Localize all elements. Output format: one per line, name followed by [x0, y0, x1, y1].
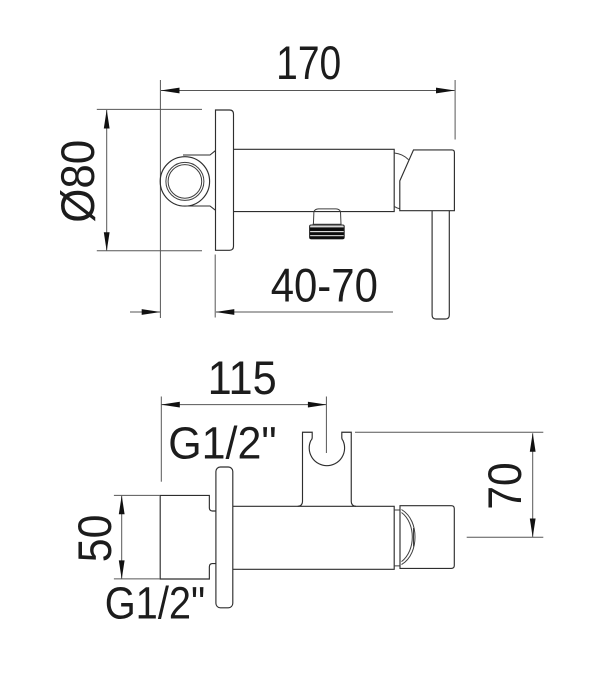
- svg-text:170: 170: [276, 36, 341, 89]
- svg-text:Ø80: Ø80: [51, 140, 104, 223]
- svg-text:115: 115: [208, 351, 277, 404]
- svg-text:50: 50: [68, 515, 121, 563]
- svg-text:40-70: 40-70: [271, 259, 378, 312]
- svg-text:G1/2": G1/2": [168, 418, 276, 469]
- svg-text:G1/2": G1/2": [105, 578, 206, 629]
- svg-text:70: 70: [478, 462, 531, 509]
